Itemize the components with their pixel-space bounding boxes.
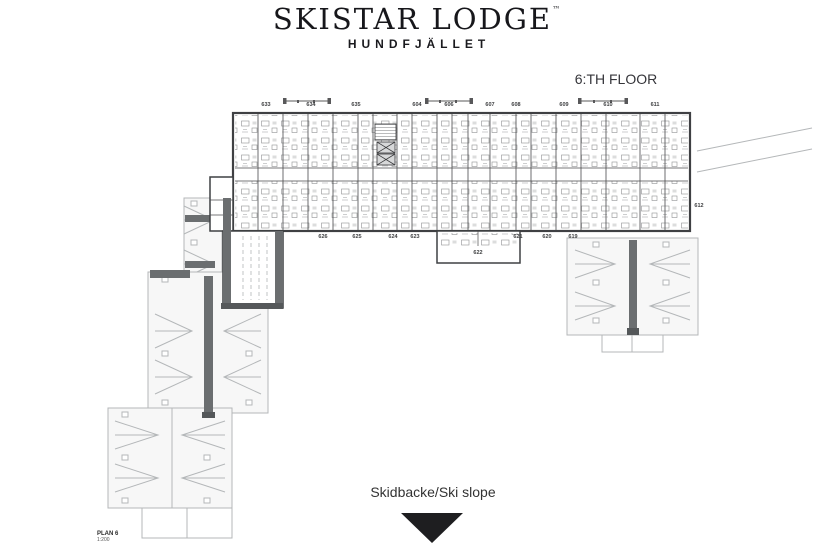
room-label: 634 bbox=[306, 102, 316, 108]
room-label: 608 bbox=[511, 102, 520, 108]
site-lines bbox=[697, 128, 812, 172]
room-label: 621 bbox=[513, 234, 522, 240]
room-label: 611 bbox=[651, 102, 660, 108]
room-label: 619 bbox=[568, 234, 577, 240]
page: SKISTAR LODGE™ HUNDFJÄLLET 6:TH FLOOR bbox=[0, 0, 833, 555]
room-622-protrusion bbox=[437, 231, 520, 263]
room-label: 633 bbox=[261, 102, 270, 108]
stair-core bbox=[375, 124, 396, 140]
down-triangle-icon bbox=[401, 513, 463, 543]
roof-block-bottom-left bbox=[108, 408, 232, 538]
room-label: 612 bbox=[694, 203, 703, 209]
corridor-strip-right-cap bbox=[627, 328, 639, 335]
room-label: 635 bbox=[351, 102, 360, 108]
room-label: 604 bbox=[412, 102, 422, 108]
corridor-strip-left bbox=[204, 276, 213, 416]
room-label: 625 bbox=[352, 234, 361, 240]
corridor-strip-right bbox=[629, 240, 637, 333]
room-label: 624 bbox=[388, 234, 398, 240]
room-label: 609 bbox=[559, 102, 568, 108]
room-label: 623 bbox=[410, 234, 419, 240]
main-wing-units-lower bbox=[235, 181, 688, 229]
room-label: 606 bbox=[444, 102, 453, 108]
room-label: 622 bbox=[473, 250, 482, 256]
main-wing-corridor bbox=[235, 168, 688, 181]
room-label: 620 bbox=[542, 234, 551, 240]
balcony-rails bbox=[283, 98, 628, 104]
ski-slope-label: Skidbacke/Ski slope bbox=[352, 484, 514, 500]
sheet-info: PLAN 6 1:200 bbox=[97, 531, 118, 544]
corridor-strip-left-cap bbox=[202, 412, 215, 418]
room-label: 607 bbox=[485, 102, 494, 108]
main-wing-units-upper bbox=[235, 115, 688, 168]
floor-plan-drawing: 633 634 635 604 606 607 608 609 610 611 … bbox=[0, 0, 833, 555]
room-label: 626 bbox=[318, 234, 327, 240]
sheet-scale-label: 1:200 bbox=[97, 538, 118, 544]
room-label: 610 bbox=[603, 102, 612, 108]
